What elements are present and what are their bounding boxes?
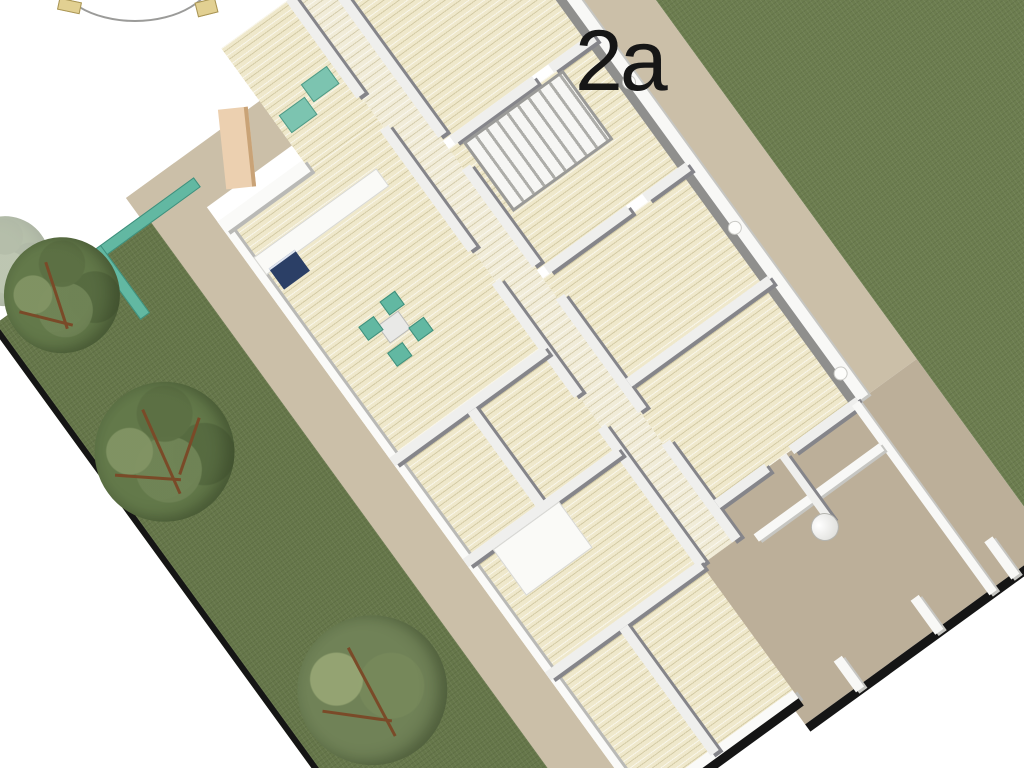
site-plan-scene <box>0 0 1024 768</box>
tree-branch <box>178 417 200 475</box>
plan-label: 2a <box>575 18 665 104</box>
tree-branch <box>141 409 181 494</box>
tree-branch <box>347 647 397 737</box>
render-canvas: 2a <box>0 0 1024 768</box>
